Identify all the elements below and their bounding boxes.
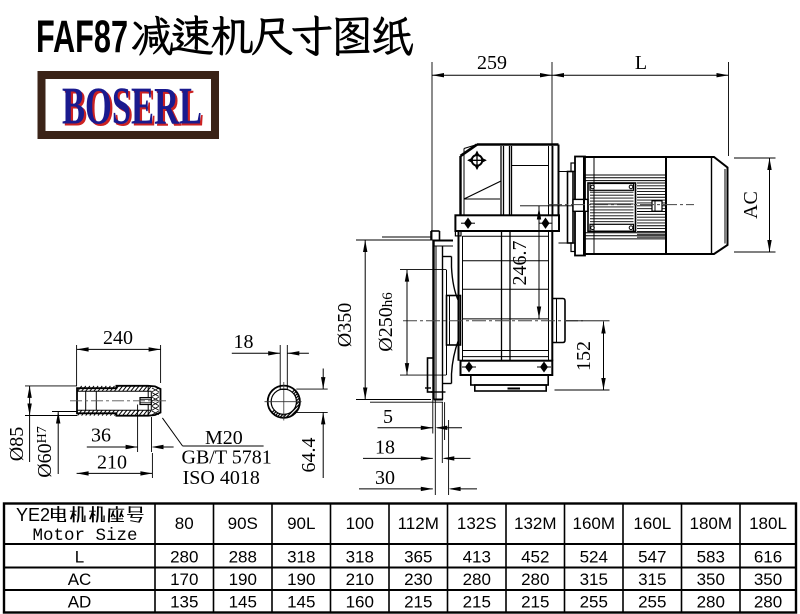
svg-text:Ø85: Ø85 xyxy=(6,427,28,461)
svg-text:90S: 90S xyxy=(228,514,258,533)
svg-text:280: 280 xyxy=(697,593,725,612)
svg-text:145: 145 xyxy=(287,593,315,612)
svg-text:259: 259 xyxy=(477,52,507,74)
svg-text:350: 350 xyxy=(697,570,725,589)
svg-text:152: 152 xyxy=(573,341,595,371)
svg-text:547: 547 xyxy=(638,548,666,567)
svg-text:170: 170 xyxy=(170,570,198,589)
svg-text:145: 145 xyxy=(229,593,257,612)
svg-text:112M: 112M xyxy=(398,514,439,533)
svg-text:315: 315 xyxy=(580,570,608,589)
svg-text:160M: 160M xyxy=(572,514,615,533)
svg-text:524: 524 xyxy=(580,548,608,567)
svg-text:240: 240 xyxy=(103,327,133,349)
svg-text:160: 160 xyxy=(346,593,374,612)
svg-text:GB/T 5781: GB/T 5781 xyxy=(182,447,272,469)
svg-text:210: 210 xyxy=(346,570,374,589)
svg-text:280: 280 xyxy=(463,570,491,589)
svg-text:90L: 90L xyxy=(287,514,315,533)
svg-text:YE2: YE2 xyxy=(16,505,50,525)
svg-text:Ø350: Ø350 xyxy=(334,303,356,347)
svg-text:ISO 4018: ISO 4018 xyxy=(183,467,260,489)
svg-text:BOSERL: BOSERL xyxy=(62,78,202,136)
svg-text:190: 190 xyxy=(287,570,315,589)
svg-text:288: 288 xyxy=(229,548,257,567)
svg-text:80: 80 xyxy=(175,514,194,533)
svg-text:132S: 132S xyxy=(457,514,497,533)
svg-text:452: 452 xyxy=(521,548,549,567)
svg-text:36: 36 xyxy=(91,425,111,447)
svg-text:180M: 180M xyxy=(689,514,732,533)
svg-text:L: L xyxy=(75,548,84,567)
svg-text:135: 135 xyxy=(170,593,198,612)
svg-text:215: 215 xyxy=(463,593,491,612)
svg-text:190: 190 xyxy=(229,570,257,589)
svg-text:318: 318 xyxy=(346,548,374,567)
svg-text:280: 280 xyxy=(170,548,198,567)
svg-text:246.7: 246.7 xyxy=(509,241,531,286)
svg-text:5: 5 xyxy=(383,406,393,428)
svg-text:365: 365 xyxy=(404,548,432,567)
svg-text:160L: 160L xyxy=(633,514,671,533)
svg-text:18: 18 xyxy=(234,331,254,353)
svg-text:18: 18 xyxy=(375,437,395,459)
svg-text:616: 616 xyxy=(754,548,782,567)
svg-text:280: 280 xyxy=(521,570,549,589)
svg-text:230: 230 xyxy=(404,570,432,589)
svg-text:210: 210 xyxy=(97,452,127,474)
svg-text:30: 30 xyxy=(375,467,395,489)
svg-text:132M: 132M xyxy=(514,514,557,533)
svg-text:413: 413 xyxy=(463,548,491,567)
svg-text:FAF87: FAF87 xyxy=(36,11,128,62)
svg-text:215: 215 xyxy=(521,593,549,612)
svg-text:280: 280 xyxy=(754,593,782,612)
svg-text:583: 583 xyxy=(697,548,725,567)
svg-text:AC: AC xyxy=(68,570,92,589)
svg-text:100: 100 xyxy=(346,514,374,533)
svg-text:255: 255 xyxy=(580,593,608,612)
svg-text:L: L xyxy=(635,52,647,74)
svg-text:315: 315 xyxy=(638,570,666,589)
svg-text:215: 215 xyxy=(404,593,432,612)
svg-text:64.4: 64.4 xyxy=(298,438,320,473)
svg-text:180L: 180L xyxy=(749,514,787,533)
svg-text:AC: AC xyxy=(740,191,762,219)
svg-text:350: 350 xyxy=(754,570,782,589)
svg-text:Motor Size: Motor Size xyxy=(32,526,137,546)
svg-text:318: 318 xyxy=(287,548,315,567)
svg-text:AD: AD xyxy=(68,593,92,612)
svg-text:255: 255 xyxy=(638,593,666,612)
